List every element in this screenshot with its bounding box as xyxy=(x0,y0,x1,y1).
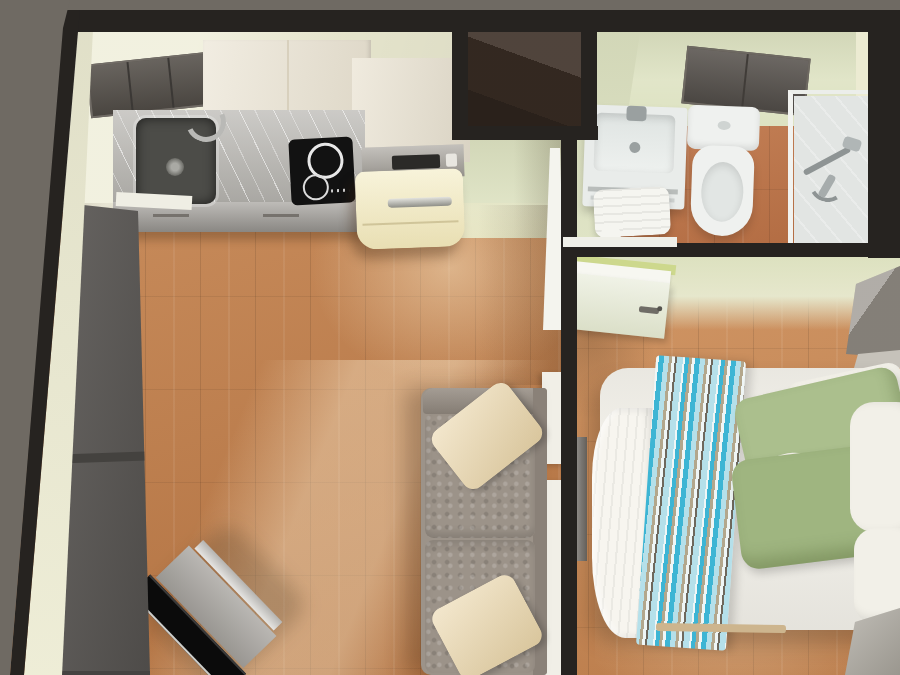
toilet xyxy=(684,105,769,240)
cabinet-door-seam xyxy=(287,40,289,118)
shower-enclosure xyxy=(788,90,872,252)
wall-partition-center xyxy=(561,131,577,675)
sink-drain xyxy=(166,158,184,176)
door-face xyxy=(567,273,670,339)
kitchen-upper-cabinets-cream xyxy=(203,40,371,118)
toilet-flush-button xyxy=(717,121,730,130)
cabinet-door-seam xyxy=(127,62,134,112)
bathroom-threshold xyxy=(563,237,677,247)
fridge-handle xyxy=(388,197,452,208)
toilet-cistern xyxy=(687,105,760,151)
wall-right-bathroom xyxy=(868,8,900,258)
cooktop xyxy=(288,136,355,205)
wall-shaft-bottom xyxy=(452,126,598,140)
cabinet-door-seam xyxy=(167,58,174,108)
burner-ring xyxy=(302,174,329,201)
microwave-vent-slot xyxy=(392,154,440,170)
door-handle-knob xyxy=(657,306,662,311)
microwave-button xyxy=(446,153,457,166)
door-handle xyxy=(639,306,660,314)
wall-shaft-left xyxy=(452,28,468,140)
white-pillow-right xyxy=(850,402,900,532)
sofa xyxy=(421,388,547,675)
fridge xyxy=(355,168,466,250)
toilet-seat xyxy=(700,161,744,222)
service-shaft xyxy=(460,28,590,132)
bedroom-wall-tv-panel xyxy=(577,437,587,561)
bed xyxy=(592,358,900,650)
toilet-bowl xyxy=(690,145,755,237)
apartment-floorplan-render xyxy=(0,0,900,675)
drawer-handle xyxy=(263,214,299,217)
fridge-door-seam xyxy=(362,220,458,225)
wall-shaft-right xyxy=(581,28,597,140)
drawer-handle xyxy=(153,214,189,217)
wall-top xyxy=(52,8,900,32)
white-pillow-bottom-right xyxy=(854,528,900,624)
shower-fixture-icon xyxy=(801,130,863,200)
cooktop-controls xyxy=(331,189,349,193)
cabinet-door-seam xyxy=(741,54,749,108)
bedroom-door-open xyxy=(564,253,676,345)
vanity-faucet-icon xyxy=(626,106,647,122)
